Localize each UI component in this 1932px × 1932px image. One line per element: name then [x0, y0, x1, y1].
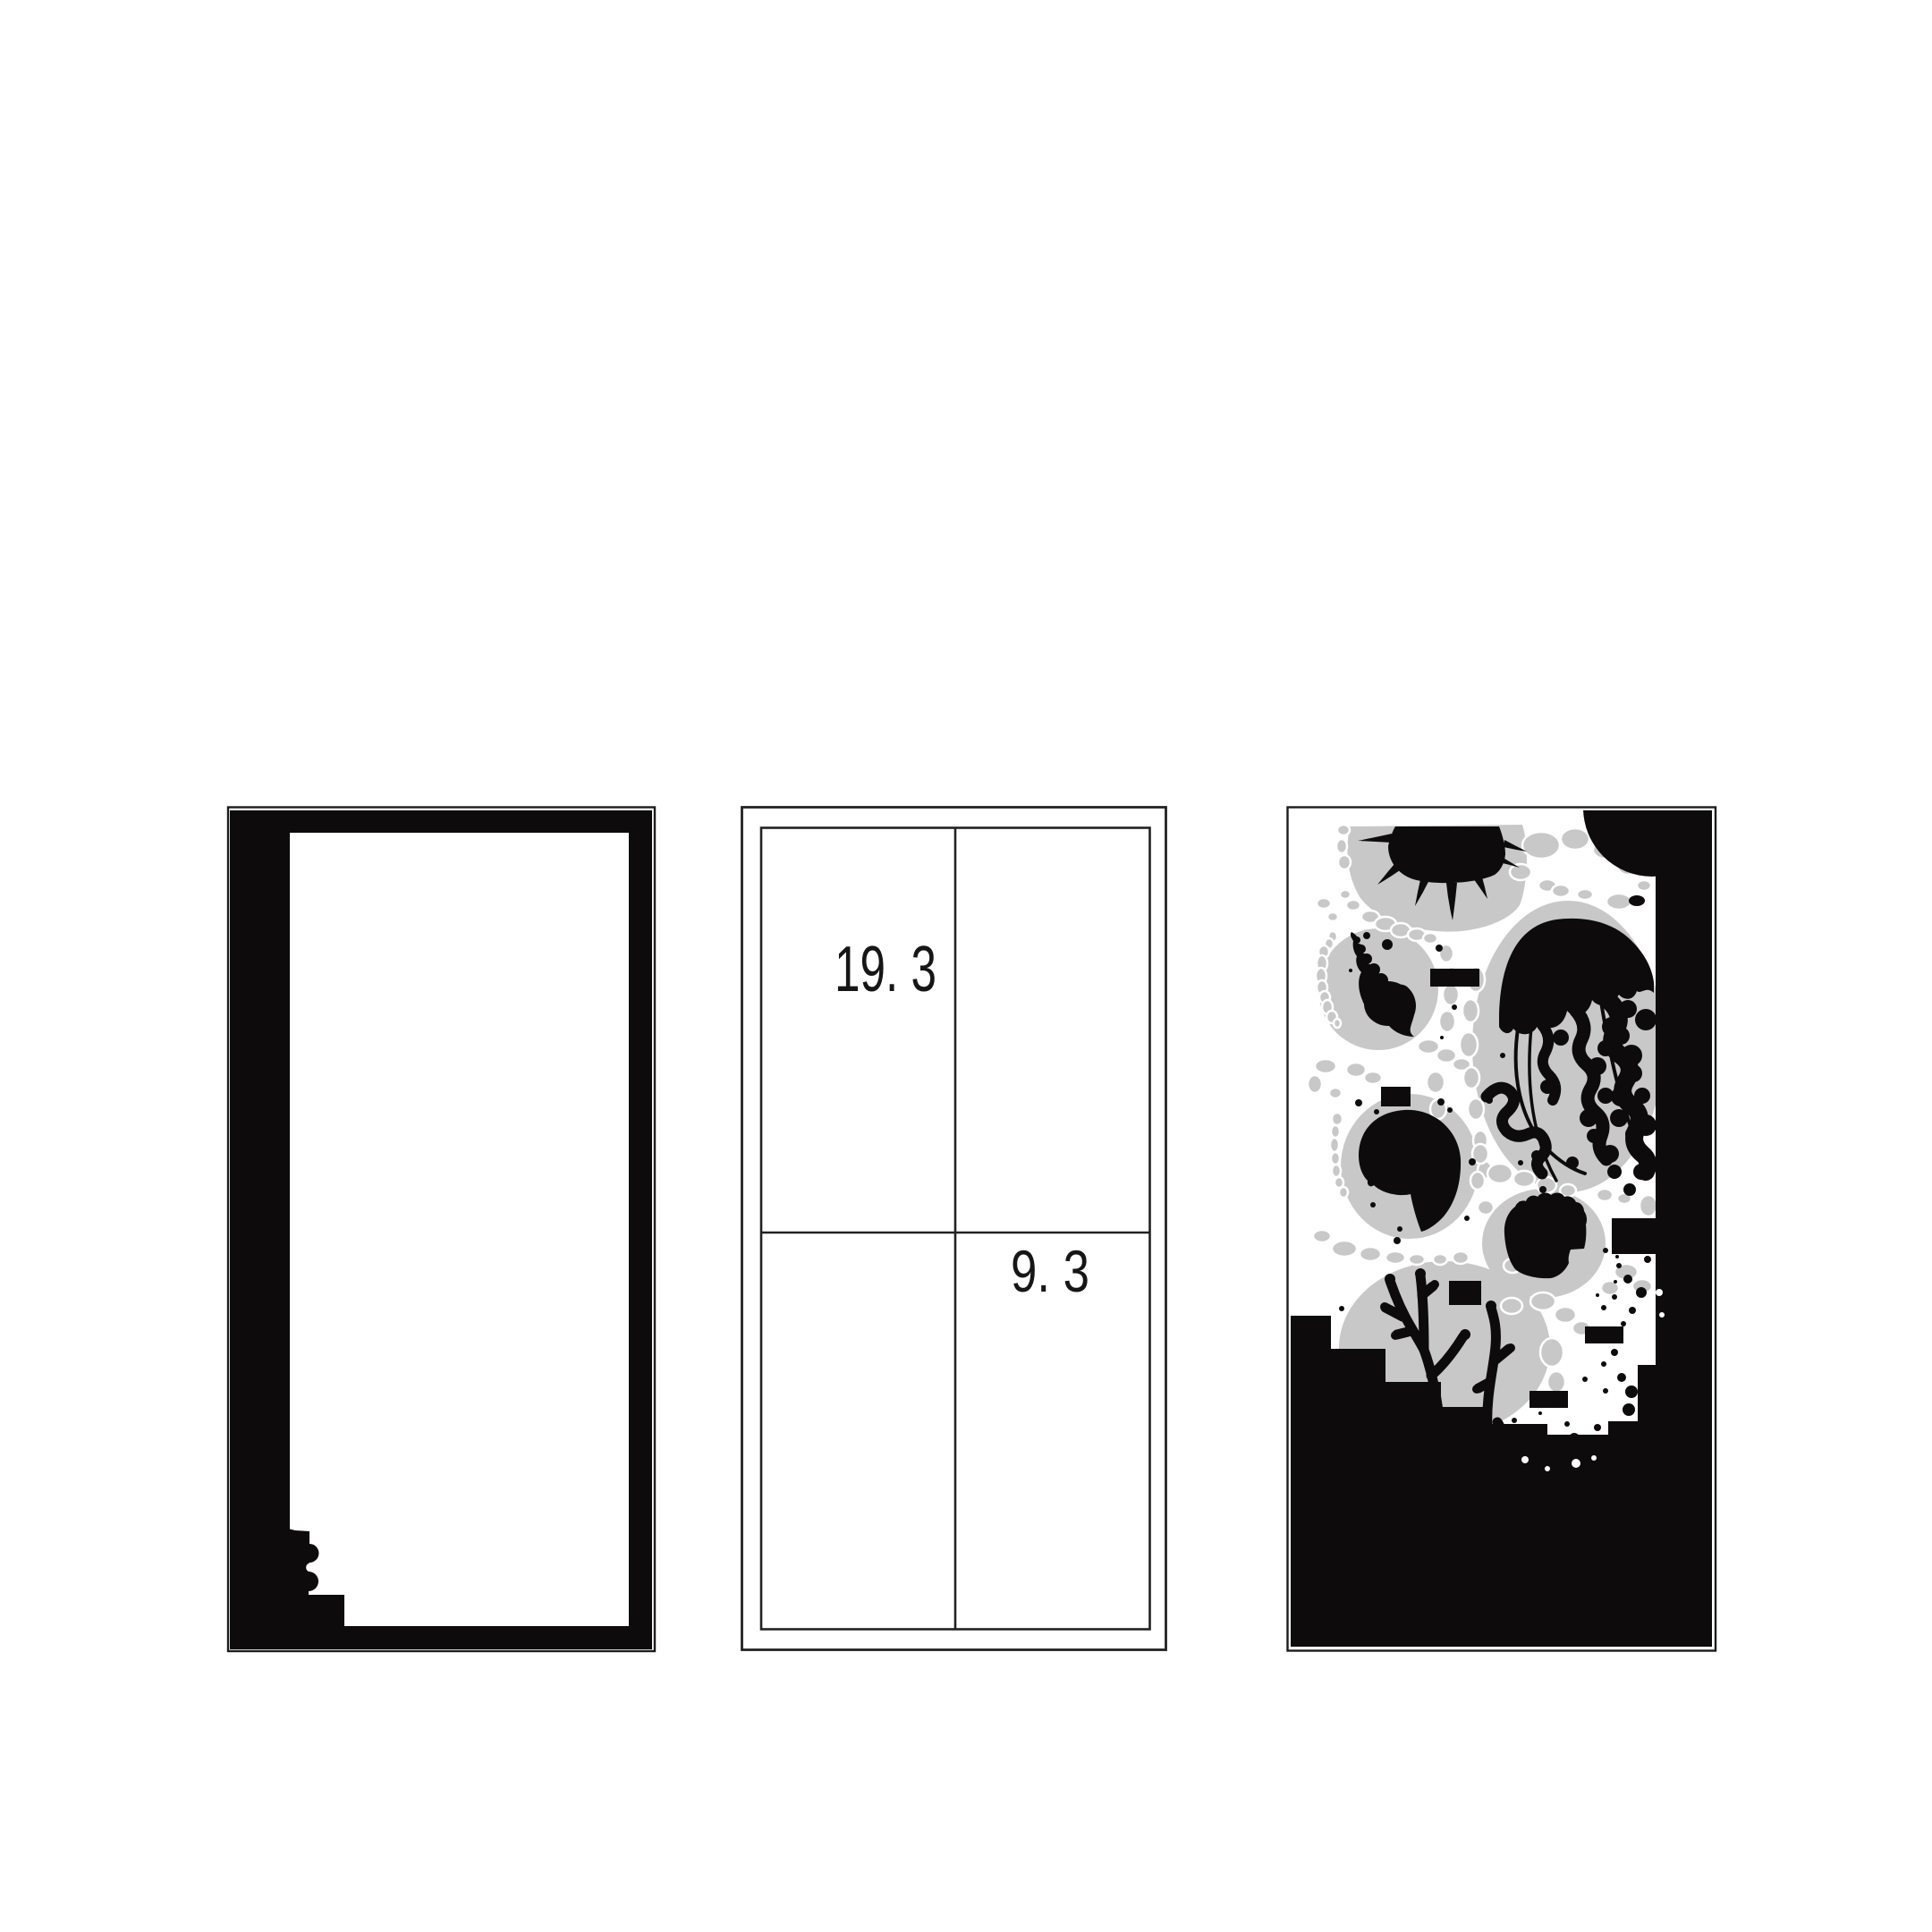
svg-text:19. 3: 19. 3: [835, 934, 936, 1005]
svg-text:9. 3: 9. 3: [1011, 1238, 1089, 1304]
